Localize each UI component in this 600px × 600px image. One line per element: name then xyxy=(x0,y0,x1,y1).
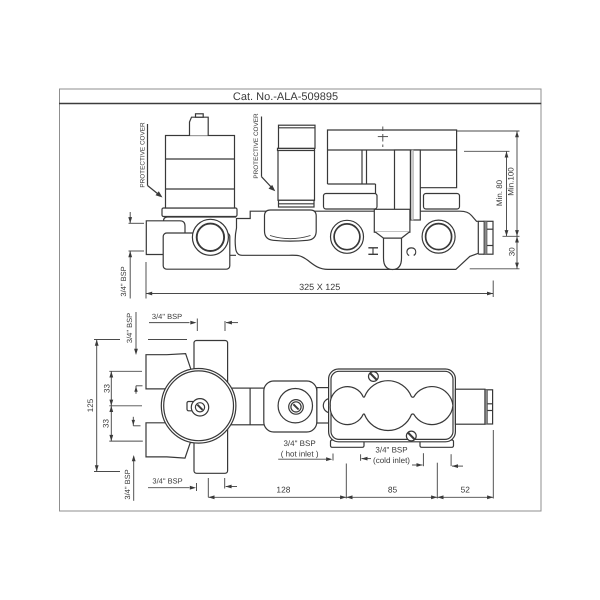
svg-text:3/4" BSP: 3/4" BSP xyxy=(152,477,182,486)
svg-text:3/4" BSP: 3/4" BSP xyxy=(125,313,134,343)
svg-text:33: 33 xyxy=(103,384,112,393)
svg-text:128: 128 xyxy=(276,485,290,495)
svg-text:125: 125 xyxy=(86,398,95,412)
svg-text:(cold inlet): (cold inlet) xyxy=(373,456,410,465)
svg-text:325 X 125: 325 X 125 xyxy=(299,282,340,292)
svg-text:3/4" BSP: 3/4" BSP xyxy=(123,469,132,499)
svg-text:3/4" BSP: 3/4" BSP xyxy=(283,439,315,448)
svg-text:Min.100: Min.100 xyxy=(507,167,516,196)
svg-text:33: 33 xyxy=(102,419,111,428)
svg-text:PROTECTIVE COVER: PROTECTIVE COVER xyxy=(140,122,147,188)
svg-text:3/4" BSP: 3/4" BSP xyxy=(119,266,128,296)
svg-text:H: H xyxy=(365,246,381,256)
svg-text:3/4" BSP: 3/4" BSP xyxy=(152,312,182,321)
svg-text:3/4" BSP: 3/4" BSP xyxy=(375,446,407,455)
svg-text:Min. 80: Min. 80 xyxy=(495,179,504,206)
svg-text:PROTECTIVE COVER: PROTECTIVE COVER xyxy=(253,113,260,179)
svg-text:52: 52 xyxy=(461,485,471,495)
svg-text:( hot inlet ): ( hot inlet ) xyxy=(281,450,319,459)
svg-text:Cat. No.-ALA-509895: Cat. No.-ALA-509895 xyxy=(233,91,338,103)
svg-text:30: 30 xyxy=(508,247,517,256)
svg-text:C: C xyxy=(404,246,420,256)
svg-text:85: 85 xyxy=(388,485,398,495)
